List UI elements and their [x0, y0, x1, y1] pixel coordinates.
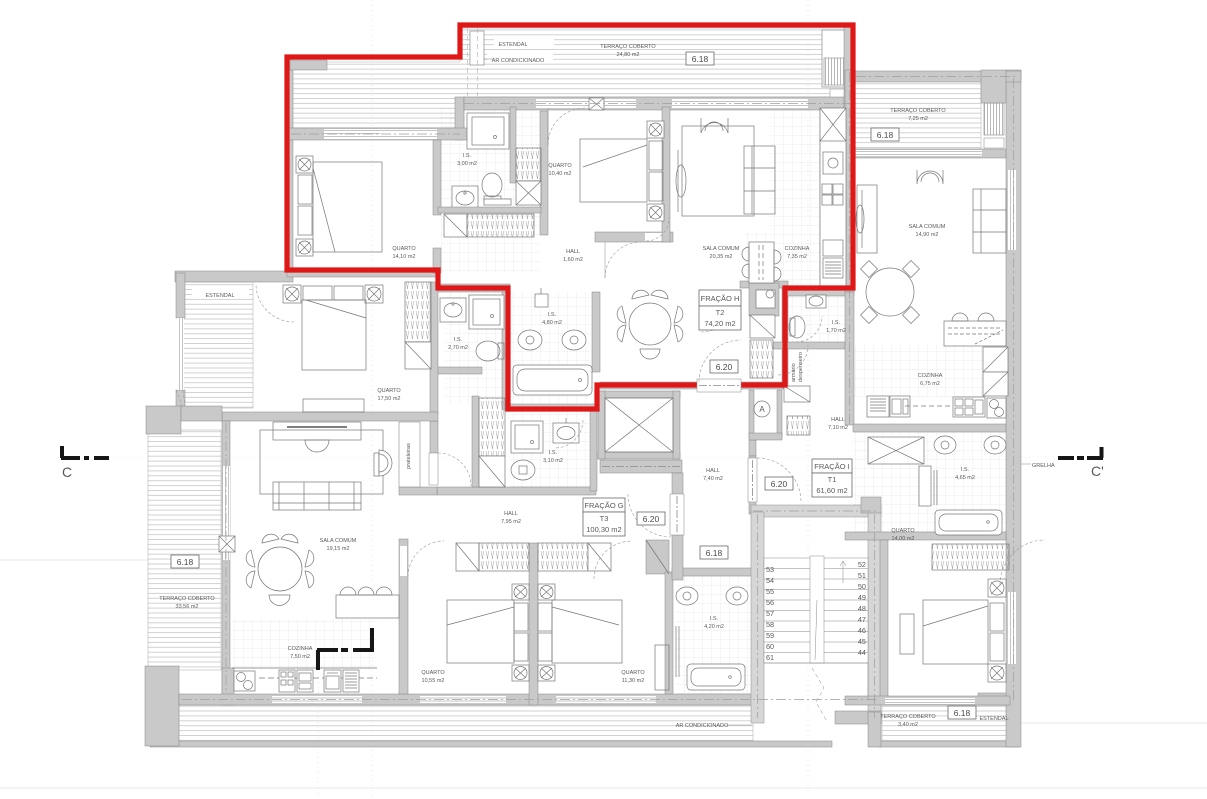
svg-text:6,75 m2: 6,75 m2 — [920, 381, 940, 387]
svg-text:I.S.: I.S. — [961, 467, 970, 473]
svg-text:74,20 m2: 74,20 m2 — [704, 319, 735, 328]
svg-text:T1: T1 — [828, 475, 837, 484]
svg-text:I.S.: I.S. — [710, 616, 719, 622]
svg-text:COZINHA: COZINHA — [918, 373, 943, 379]
svg-text:FRAÇÃO G: FRAÇÃO G — [584, 501, 623, 510]
svg-text:14,90 m2: 14,90 m2 — [916, 232, 939, 238]
svg-text:TERRAÇO COBERTO: TERRAÇO COBERTO — [880, 714, 936, 720]
svg-text:54: 54 — [766, 576, 774, 585]
svg-text:57: 57 — [766, 609, 774, 618]
svg-text:FRAÇÃO H: FRAÇÃO H — [701, 294, 740, 303]
svg-text:HALL: HALL — [831, 417, 845, 423]
svg-text:C': C' — [1091, 463, 1104, 479]
svg-text:10,55 m2: 10,55 m2 — [422, 678, 445, 684]
svg-text:6.18: 6.18 — [877, 130, 894, 140]
svg-text:ESTENDAL: ESTENDAL — [979, 716, 1008, 722]
svg-text:1,60 m2: 1,60 m2 — [563, 257, 583, 263]
svg-text:100,30 m2: 100,30 m2 — [586, 525, 621, 534]
svg-text:56: 56 — [766, 598, 774, 607]
svg-text:4,20 m2: 4,20 m2 — [704, 624, 724, 630]
svg-text:4,65 m2: 4,65 m2 — [955, 475, 975, 481]
svg-text:60: 60 — [766, 642, 774, 651]
svg-text:2,70 m2: 2,70 m2 — [448, 345, 468, 351]
svg-text:TERRAÇO COBERTO: TERRAÇO COBERTO — [159, 596, 215, 602]
svg-text:3,00 m2: 3,00 m2 — [457, 161, 477, 167]
svg-text:11,30 m2: 11,30 m2 — [622, 678, 645, 684]
svg-text:61: 61 — [766, 653, 774, 662]
svg-text:52: 52 — [858, 560, 866, 569]
svg-text:1,70 m2: 1,70 m2 — [826, 328, 846, 334]
svg-text:COZINHA: COZINHA — [785, 246, 810, 252]
svg-text:19,15 m2: 19,15 m2 — [327, 546, 350, 552]
svg-text:10,40 m2: 10,40 m2 — [549, 171, 572, 177]
svg-text:44: 44 — [858, 648, 866, 657]
svg-text:3,40 m2: 3,40 m2 — [898, 722, 918, 728]
svg-text:6.20: 6.20 — [716, 362, 733, 372]
svg-text:FRAÇÃO I: FRAÇÃO I — [814, 462, 849, 471]
svg-text:prateleiras: prateleiras — [406, 443, 412, 469]
svg-text:58: 58 — [766, 620, 774, 629]
svg-text:6.18: 6.18 — [706, 548, 723, 558]
svg-text:7,25 m2: 7,25 m2 — [908, 116, 928, 122]
svg-text:despenseiro: despenseiro — [798, 352, 804, 382]
svg-text:49: 49 — [858, 593, 866, 602]
svg-text:armário: armário — [791, 363, 797, 382]
svg-text:46: 46 — [858, 626, 866, 635]
svg-text:C: C — [62, 464, 72, 480]
svg-text:HALL: HALL — [566, 249, 580, 255]
svg-text:53: 53 — [766, 565, 774, 574]
svg-text:24,80 m2: 24,80 m2 — [617, 52, 640, 58]
svg-text:7,40 m2: 7,40 m2 — [703, 476, 723, 482]
svg-text:QUARTO: QUARTO — [421, 670, 445, 676]
svg-text:I.S.: I.S. — [454, 337, 463, 343]
svg-text:TERRAÇO COBERTO: TERRAÇO COBERTO — [600, 44, 656, 50]
svg-text:61,60 m2: 61,60 m2 — [816, 486, 847, 495]
svg-text:A: A — [759, 405, 765, 414]
svg-text:AR CONDICIONADO: AR CONDICIONADO — [492, 58, 545, 64]
svg-text:SALA COMUM: SALA COMUM — [909, 224, 946, 230]
svg-text:TERRAÇO COBERTO: TERRAÇO COBERTO — [890, 108, 946, 114]
svg-text:HALL: HALL — [706, 468, 720, 474]
svg-text:7,95 m2: 7,95 m2 — [501, 519, 521, 525]
svg-text:COZINHA: COZINHA — [288, 646, 313, 652]
svg-text:SALA COMUM: SALA COMUM — [320, 538, 357, 544]
svg-text:6.18: 6.18 — [954, 708, 971, 718]
svg-text:HALL: HALL — [504, 511, 518, 517]
svg-text:50: 50 — [858, 582, 866, 591]
svg-text:45: 45 — [858, 637, 866, 646]
svg-text:QUARTO: QUARTO — [891, 528, 915, 534]
svg-text:QUARTO: QUARTO — [548, 163, 572, 169]
svg-text:AR CONDICIONADO: AR CONDICIONADO — [676, 723, 729, 729]
svg-text:20,35 m2: 20,35 m2 — [710, 254, 733, 260]
svg-text:GRELHA: GRELHA — [1032, 463, 1055, 469]
svg-text:ESTENDAL: ESTENDAL — [498, 42, 527, 48]
svg-text:I.S.: I.S. — [549, 450, 558, 456]
svg-text:4,80 m2: 4,80 m2 — [542, 320, 562, 326]
svg-text:SALA COMUM: SALA COMUM — [703, 246, 740, 252]
svg-text:3,10 m2: 3,10 m2 — [543, 458, 563, 464]
svg-text:I.S.: I.S. — [832, 320, 841, 326]
svg-text:7,10 m2: 7,10 m2 — [828, 425, 848, 431]
svg-text:55: 55 — [766, 587, 774, 596]
svg-text:6.18: 6.18 — [177, 557, 194, 567]
svg-text:T3: T3 — [600, 514, 609, 523]
svg-text:QUARTO: QUARTO — [621, 670, 645, 676]
svg-text:48: 48 — [858, 604, 866, 613]
svg-text:14,00 m2: 14,00 m2 — [892, 536, 915, 542]
svg-text:7,35 m2: 7,35 m2 — [787, 254, 807, 260]
svg-text:T2: T2 — [716, 308, 725, 317]
svg-text:14,10 m2: 14,10 m2 — [393, 254, 416, 260]
svg-text:33,56 m2: 33,56 m2 — [176, 604, 199, 610]
svg-text:I.S.: I.S. — [548, 312, 557, 318]
svg-text:I.S.: I.S. — [463, 153, 472, 159]
svg-text:7,50 m2: 7,50 m2 — [290, 654, 310, 660]
svg-text:51: 51 — [858, 571, 866, 580]
svg-text:6.18: 6.18 — [692, 54, 709, 64]
svg-text:6.20: 6.20 — [643, 514, 660, 524]
svg-text:6.20: 6.20 — [771, 479, 788, 489]
svg-text:QUARTO: QUARTO — [392, 246, 416, 252]
svg-text:59: 59 — [766, 631, 774, 640]
svg-text:QUARTO: QUARTO — [377, 388, 401, 394]
svg-text:47: 47 — [858, 615, 866, 624]
svg-text:17,50 m2: 17,50 m2 — [378, 396, 401, 402]
svg-text:ESTENDAL: ESTENDAL — [205, 293, 234, 299]
